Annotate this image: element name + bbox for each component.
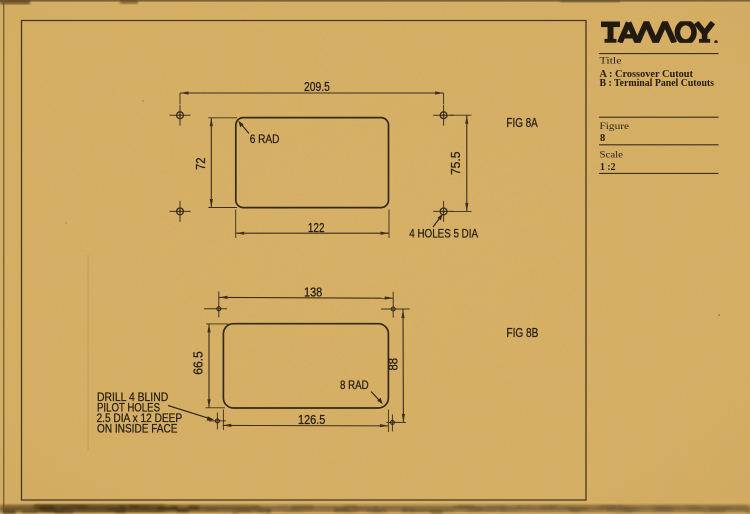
svg-text:Title: Title — [600, 56, 623, 67]
svg-text:126.5: 126.5 — [298, 413, 325, 427]
svg-text:FIG 8A: FIG 8A — [506, 116, 538, 130]
svg-text:8: 8 — [600, 133, 605, 144]
svg-text:72: 72 — [194, 158, 208, 171]
svg-text:4 HOLES 5 DIA: 4 HOLES 5 DIA — [409, 227, 478, 241]
svg-text:ON INSIDE FACE: ON INSIDE FACE — [97, 421, 178, 435]
svg-text:B : Terminal Panel Cutouts: B : Terminal Panel Cutouts — [600, 78, 715, 89]
svg-text:75.5: 75.5 — [449, 152, 463, 176]
svg-text:8 RAD: 8 RAD — [340, 378, 369, 392]
svg-text:122: 122 — [308, 221, 325, 235]
svg-text:138: 138 — [304, 285, 322, 299]
svg-text:FIG 8B: FIG 8B — [506, 326, 538, 340]
svg-text:Figure: Figure — [600, 121, 630, 132]
svg-text:Scale: Scale — [600, 149, 624, 160]
svg-text:1 :2: 1 :2 — [600, 162, 616, 173]
svg-text:6 RAD: 6 RAD — [250, 132, 280, 146]
svg-text:66.5: 66.5 — [192, 351, 206, 375]
svg-text:209.5: 209.5 — [304, 80, 330, 94]
svg-text:88: 88 — [387, 358, 401, 371]
